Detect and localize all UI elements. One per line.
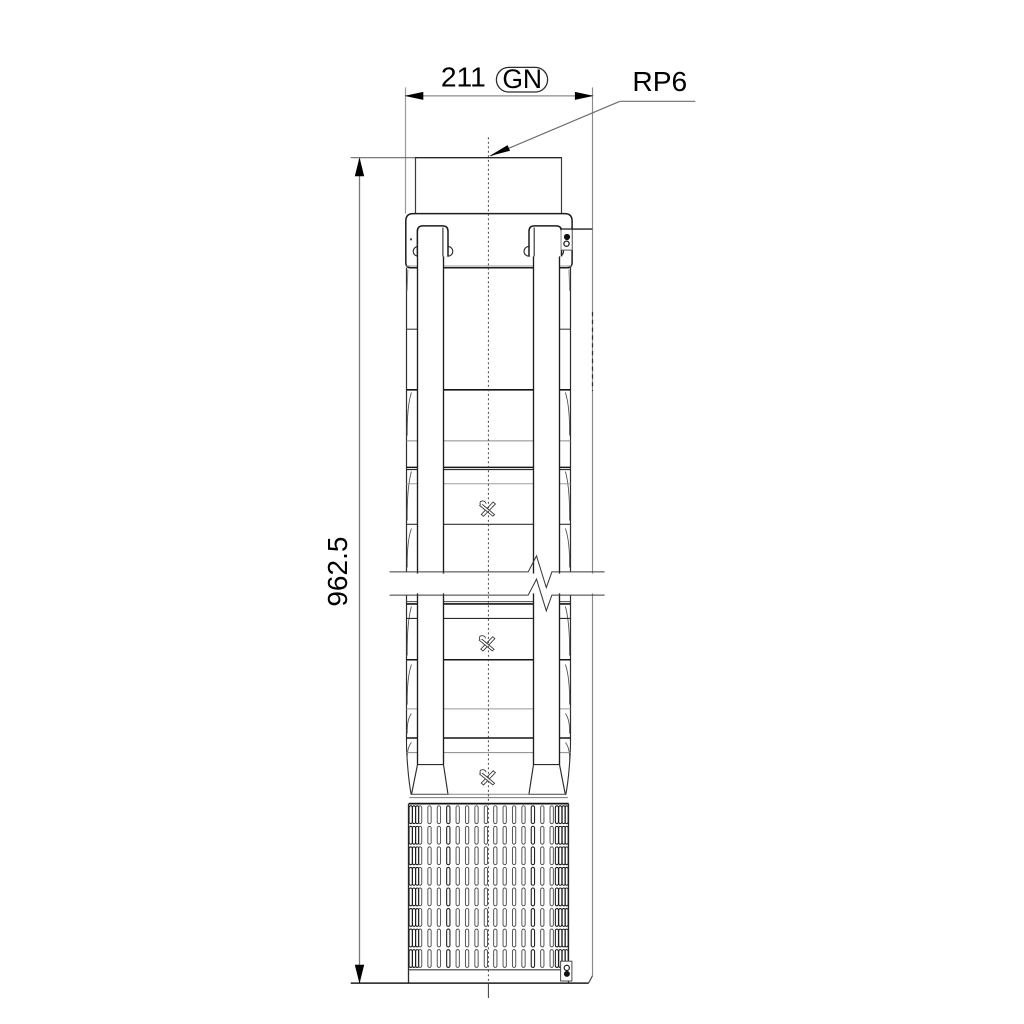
- svg-text:211: 211: [441, 60, 486, 92]
- svg-text:RP6: RP6: [632, 65, 687, 97]
- svg-text:GN: GN: [502, 64, 542, 94]
- svg-text:962.5: 962.5: [322, 537, 353, 607]
